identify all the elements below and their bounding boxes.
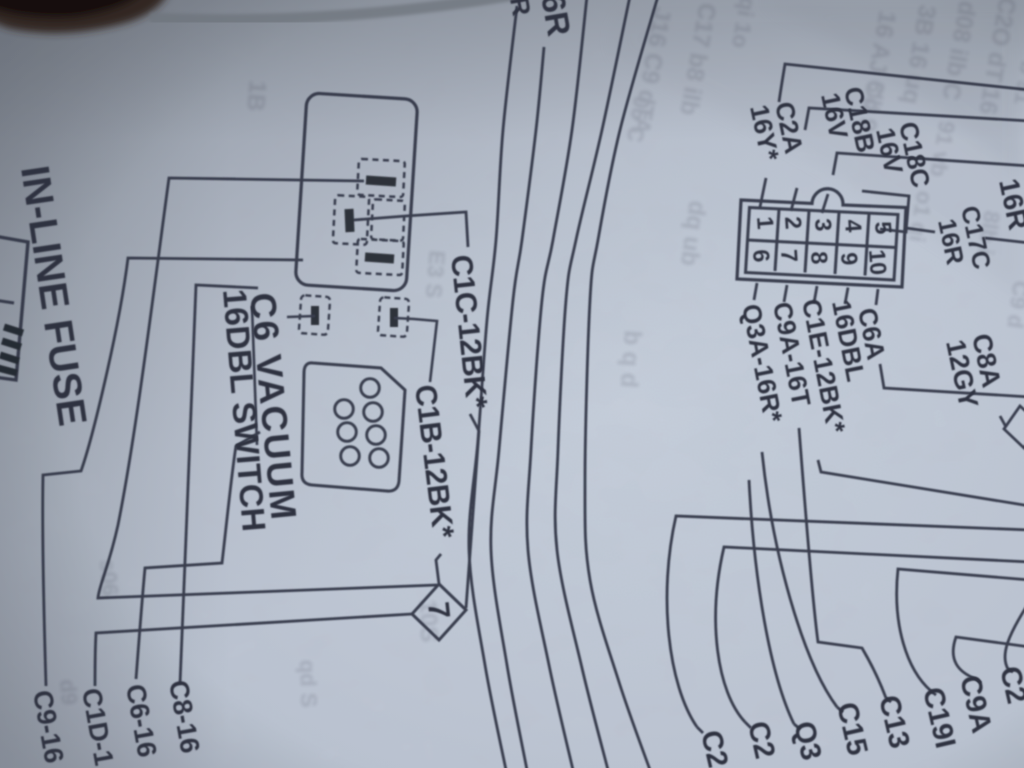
svg-text:6: 6 xyxy=(748,249,775,264)
svg-text:7: 7 xyxy=(421,600,456,620)
svg-text:5: 5 xyxy=(870,221,897,236)
svg-text:7: 7 xyxy=(776,249,803,264)
svg-text:2: 2 xyxy=(780,216,807,231)
svg-text:1B: 1B xyxy=(241,79,271,112)
svg-text:4: 4 xyxy=(840,219,867,234)
svg-text:qd S: qd S xyxy=(295,659,322,708)
svg-text:10: 10 xyxy=(864,249,892,276)
svg-text:b q d: b q d xyxy=(615,330,646,389)
svg-text:8: 8 xyxy=(806,251,833,266)
svg-text:9: 9 xyxy=(836,252,863,267)
svg-text:3: 3 xyxy=(810,218,837,233)
svg-text:1: 1 xyxy=(752,216,779,231)
